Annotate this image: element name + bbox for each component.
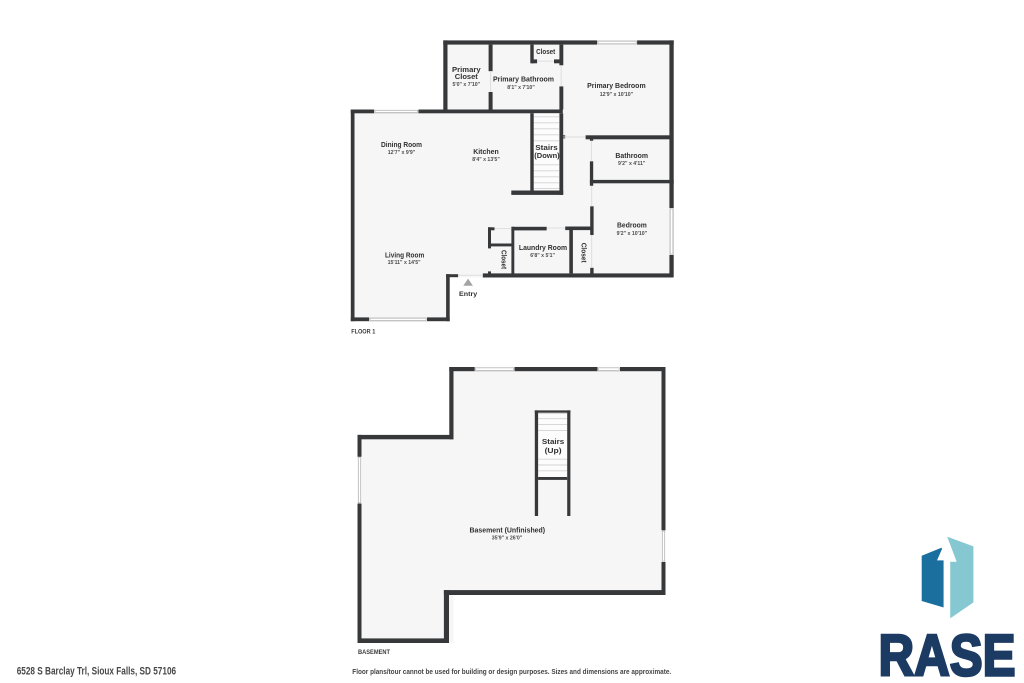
svg-text:Kitchen: Kitchen — [473, 147, 499, 156]
svg-text:8'4" x 13'5": 8'4" x 13'5" — [472, 157, 500, 163]
svg-text:BASEMENT: BASEMENT — [358, 649, 390, 656]
svg-text:(Up): (Up) — [545, 446, 563, 455]
svg-text:6528 S Barclay Trl, Sioux Fall: 6528 S Barclay Trl, Sioux Falls, SD 5710… — [17, 666, 176, 678]
svg-text:8'1" x 7'10": 8'1" x 7'10" — [507, 85, 535, 91]
svg-text:Laundry Room: Laundry Room — [519, 243, 568, 252]
svg-text:Bedroom: Bedroom — [617, 221, 647, 230]
svg-text:Primary Bathroom: Primary Bathroom — [493, 75, 555, 84]
svg-text:12'9" x 10'10": 12'9" x 10'10" — [600, 92, 634, 98]
svg-text:9'2" x 4'11": 9'2" x 4'11" — [618, 161, 646, 167]
svg-text:35'9" x 26'0": 35'9" x 26'0" — [492, 536, 523, 542]
svg-text:12'7" x 9'9": 12'7" x 9'9" — [388, 150, 416, 156]
svg-text:Stairs: Stairs — [542, 437, 564, 446]
svg-text:6'8" x 5'1": 6'8" x 5'1" — [530, 253, 555, 259]
svg-text:Closet: Closet — [455, 72, 479, 81]
svg-text:Closet: Closet — [580, 243, 589, 264]
svg-text:Living Room: Living Room — [385, 251, 425, 260]
svg-text:Basement (Unfinished): Basement (Unfinished) — [470, 525, 546, 534]
svg-text:Entry: Entry — [459, 291, 477, 298]
svg-text:Closet: Closet — [536, 47, 556, 56]
svg-text:Primary Bedroom: Primary Bedroom — [587, 81, 646, 90]
svg-text:Dining Room: Dining Room — [381, 140, 422, 149]
svg-text:RASE: RASE — [879, 624, 1016, 683]
svg-text:FLOOR 1: FLOOR 1 — [351, 328, 375, 335]
svg-text:Floor plans/tour cannot be use: Floor plans/tour cannot be used for buil… — [352, 667, 671, 676]
svg-text:Closet: Closet — [499, 250, 508, 270]
svg-text:9'2" x 10'10": 9'2" x 10'10" — [617, 231, 648, 237]
svg-text:5'0" x 7'10": 5'0" x 7'10" — [453, 82, 481, 88]
svg-text:(Down): (Down) — [534, 151, 560, 160]
svg-text:Bathroom: Bathroom — [615, 151, 648, 160]
svg-text:15'11" x 14'5": 15'11" x 14'5" — [388, 260, 422, 266]
